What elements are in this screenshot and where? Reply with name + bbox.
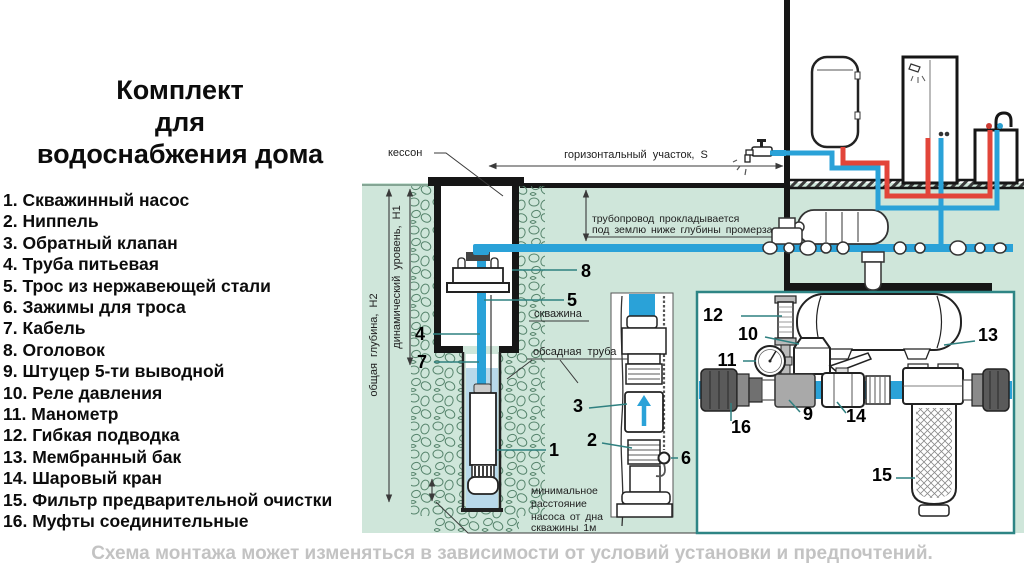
hot-handle-icon — [986, 123, 992, 129]
legend-item-1: 1. Скважинный насос — [3, 190, 361, 211]
label-min-distance-1: минимальное — [531, 485, 598, 497]
caisson-lid — [428, 177, 524, 186]
callout-15: 15 — [872, 465, 892, 485]
poster: Комплект для водоснабжения дома 1. Скваж… — [0, 0, 1024, 576]
callout-1: 1 — [549, 440, 559, 460]
submersible-pump — [468, 384, 498, 494]
label-min-distance-4: скважины 1м — [531, 522, 596, 534]
cable-clamp — [659, 453, 670, 464]
strip-pipe — [629, 294, 655, 316]
legend-item-13: 13. Мембранный бак — [3, 447, 361, 468]
pump-top — [630, 466, 660, 492]
legend-item-15: 15. Фильтр предварительной очистки — [3, 490, 361, 511]
label-horizontal-section: горизонтальный участок, S — [564, 149, 708, 161]
label-kesson: кессон — [388, 147, 422, 159]
callout-12: 12 — [703, 305, 723, 325]
callout-11: 11 — [717, 350, 736, 370]
inline-filter — [903, 364, 963, 516]
legend-item-14: 14. Шаровый кран — [3, 468, 361, 489]
callout-2: 2 — [587, 430, 597, 450]
sink-faucet — [986, 113, 1011, 130]
detail-strip — [611, 293, 673, 526]
legend-item-6: 6. Зажимы для троса — [3, 297, 361, 318]
main-pipe — [486, 244, 1013, 252]
legend-item-8: 8. Оголовок — [3, 340, 361, 361]
legend-item-4: 4. Труба питьевая — [3, 254, 361, 275]
callout-4: 4 — [415, 324, 425, 344]
label-min-distance-2: расстояние — [531, 498, 587, 510]
legend-item-3: 3. Обратный клапан — [3, 233, 361, 254]
legend-item-16: 16. Муфты соединительные — [3, 511, 361, 532]
legend-item-7: 7. Кабель — [3, 318, 361, 339]
label-dynamic-level: динамический уровень, Н1 — [391, 205, 403, 348]
surface-line — [520, 183, 786, 188]
legend-item-12: 12. Гибкая подводка — [3, 425, 361, 446]
callout-3: 3 — [573, 396, 583, 416]
callout-5: 5 — [567, 290, 577, 310]
callout-13: 13 — [978, 325, 998, 345]
footer-note: Схема монтажа может изменяться в зависим… — [0, 543, 1024, 565]
legend-item-5: 5. Трос из нержавеющей стали — [3, 276, 361, 297]
cold-handle-icon — [997, 123, 1003, 129]
installation-diagram: общая глубина, Н2 динамический уровень, … — [360, 0, 1024, 540]
pressure-switch — [794, 338, 830, 374]
callout-16: 16 — [731, 417, 751, 437]
water-heater — [812, 57, 860, 147]
poster-title: Комплект для водоснабжения дома — [10, 74, 350, 170]
title-line-1: Комплект — [10, 74, 350, 106]
legend-list: 1. Скважинный насос 2. Ниппель 3. Обратн… — [3, 190, 361, 533]
callout-8: 8 — [581, 261, 591, 281]
label-casing: обсадная труба — [533, 346, 617, 358]
callout-6: 6 — [681, 448, 691, 468]
legend-item-9: 9. Штуцер 5-ти выводной — [3, 361, 361, 382]
five-way-fitting — [775, 374, 815, 407]
label-total-depth: общая глубина, Н2 — [368, 293, 380, 396]
legend-item-10: 10. Реле давления — [3, 383, 361, 404]
pressure-tank-insitu — [798, 210, 888, 244]
callout-14: 14 — [846, 406, 866, 426]
label-well: скважина — [534, 308, 583, 320]
legend-item-11: 11. Манометр — [3, 404, 361, 425]
callout-7: 7 — [417, 352, 427, 372]
title-line-3: водоснабжения дома — [10, 138, 350, 170]
outdoor-tap — [733, 139, 786, 175]
legend-item-2: 2. Ниппель — [3, 211, 361, 232]
label-pipeline-note-2: под землю ниже глубины промерзания — [592, 224, 790, 236]
title-line-2: для — [10, 106, 350, 138]
filter-insitu — [862, 252, 884, 290]
callout-9: 9 — [803, 404, 813, 424]
connector-coupling — [866, 376, 890, 404]
callout-10: 10 — [738, 324, 758, 344]
basement-wall — [784, 283, 992, 291]
